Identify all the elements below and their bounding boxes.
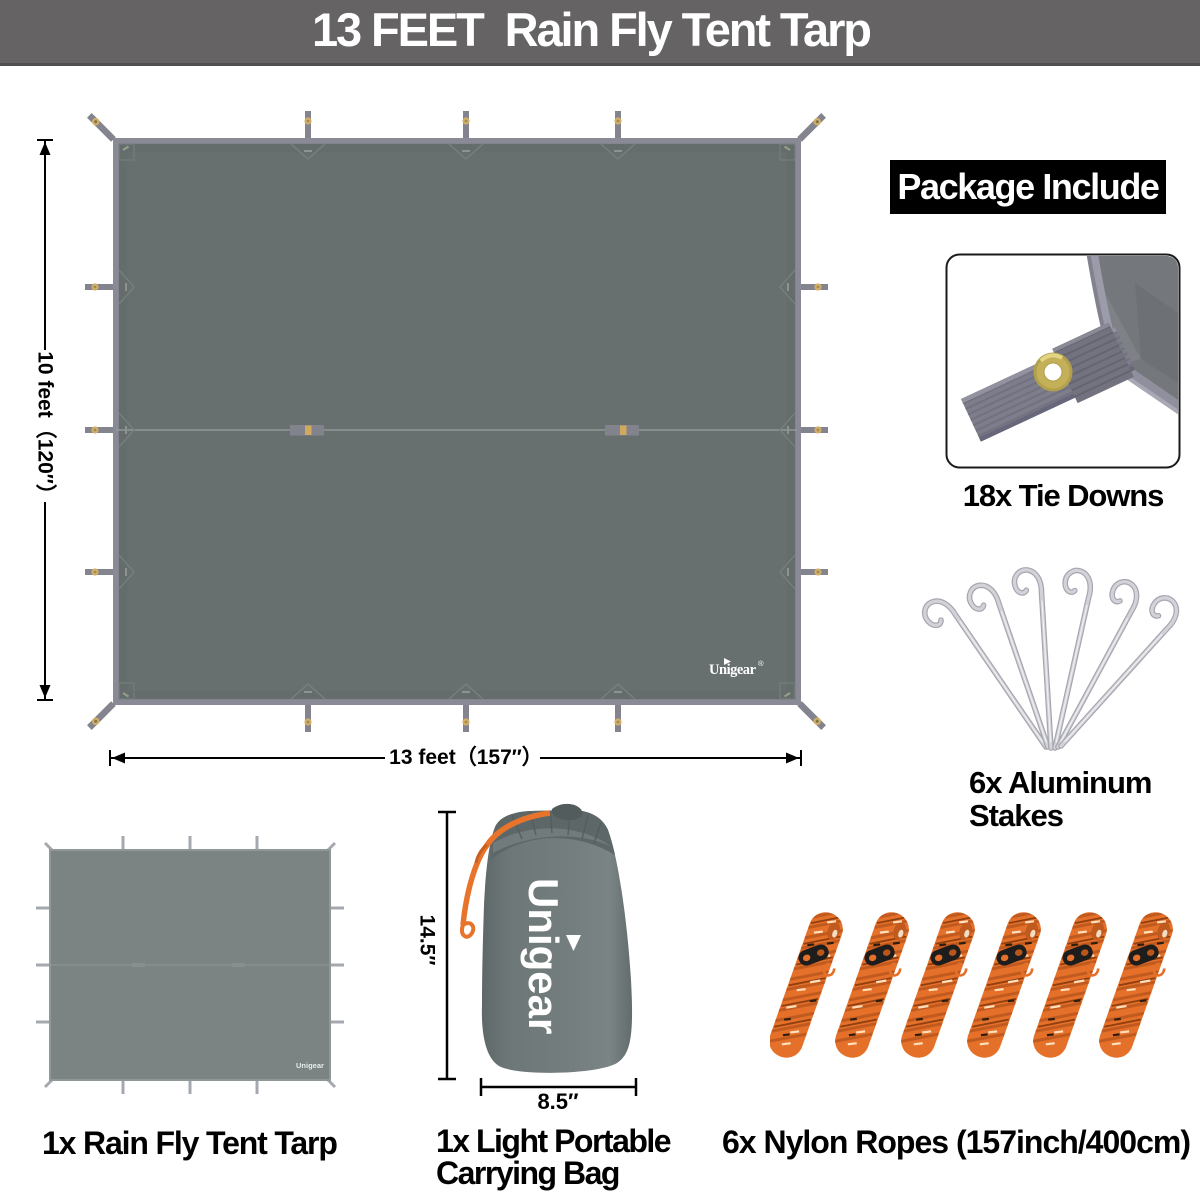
- svg-text:10 feet（120″）: 10 feet（120″）: [34, 351, 58, 505]
- svg-text:®: ®: [758, 659, 764, 668]
- svg-text:14.5″: 14.5″: [416, 915, 439, 966]
- svg-text:8.5″: 8.5″: [537, 1089, 579, 1114]
- svg-text:Unigear: Unigear: [520, 878, 567, 1034]
- svg-text:13 feet（157″）: 13 feet（157″）: [389, 745, 543, 769]
- svg-text:Unigear: Unigear: [709, 662, 757, 678]
- svg-text:Unigear: Unigear: [296, 1061, 324, 1070]
